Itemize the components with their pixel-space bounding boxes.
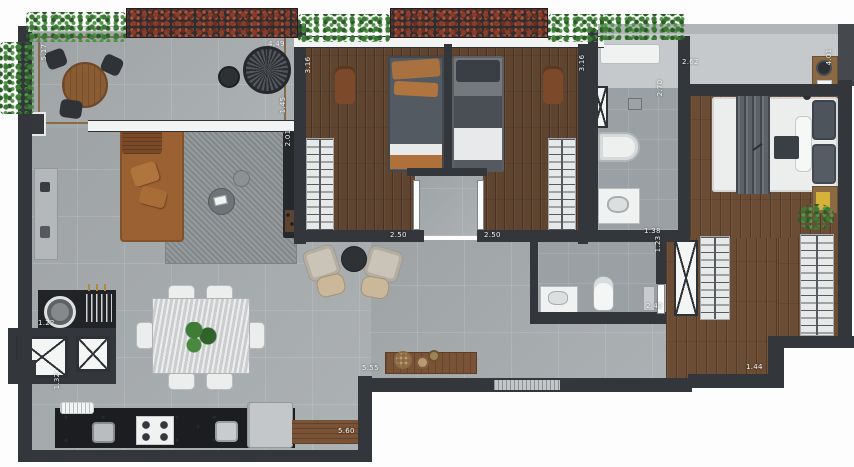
bed-tray bbox=[774, 136, 799, 159]
dim-service-width: 1.22 bbox=[38, 319, 55, 327]
kitchen-wood-counter bbox=[292, 420, 368, 444]
master-plant bbox=[798, 204, 834, 230]
bed1-sheet bbox=[390, 144, 442, 155]
planter-top-3 bbox=[548, 14, 604, 42]
shower-fixture bbox=[628, 98, 642, 110]
bathtub bbox=[598, 132, 640, 162]
dim-living-media: 2.01 bbox=[284, 126, 292, 150]
kitchen-sink bbox=[92, 422, 115, 443]
dim-living-span: 5.55 bbox=[362, 364, 379, 372]
bath2-wall-left bbox=[530, 230, 538, 324]
sideboard-plate bbox=[394, 351, 412, 369]
dim-living-opening: 1.45 bbox=[279, 93, 287, 117]
balcony-side-stool bbox=[218, 66, 240, 88]
table-plant bbox=[182, 322, 220, 354]
bedroom2-wardrobe bbox=[548, 138, 576, 234]
wall-bottom-kitchen bbox=[18, 450, 372, 462]
bedroom1-armchair bbox=[335, 66, 355, 104]
bottom-window bbox=[494, 380, 560, 390]
dim-bedroom1-width: 2.50 bbox=[390, 231, 407, 239]
cabinet-decor bbox=[40, 182, 50, 192]
elevator-2 bbox=[76, 336, 110, 372]
bath2-basin bbox=[548, 291, 568, 305]
dim-balcony-depth: 5.17 bbox=[40, 40, 48, 64]
wall-service-left bbox=[588, 30, 598, 240]
bedroom1-door bbox=[413, 180, 420, 230]
wall-bottom-right bbox=[778, 336, 854, 348]
bedroom-vestibule-floor bbox=[415, 176, 483, 236]
dim-master-depth: 4.01 bbox=[825, 45, 833, 69]
dim-bath1-depth: 2.70 bbox=[656, 76, 664, 100]
dim-bedroom2-width: 2.50 bbox=[484, 231, 501, 239]
master-pillow bbox=[812, 144, 836, 184]
wall-right bbox=[838, 80, 852, 346]
roof-corner bbox=[838, 24, 854, 86]
dim-bath2-width: 2.42 bbox=[646, 302, 663, 310]
closet-wardrobe-right bbox=[800, 234, 834, 336]
dish-rack bbox=[60, 402, 94, 414]
bath2-wall-bottom bbox=[530, 312, 666, 324]
kitchen-sink-2 bbox=[215, 421, 238, 442]
dim-bedroom1-depth: 3.16 bbox=[304, 53, 312, 77]
planter-top-2 bbox=[298, 14, 390, 42]
bed2-blanket bbox=[454, 96, 502, 128]
drying-rack bbox=[86, 294, 112, 322]
wall-service-right bbox=[678, 36, 690, 240]
master-pillow bbox=[812, 100, 836, 140]
toilet bbox=[593, 276, 614, 311]
dim-bedroom2-depth: 3.16 bbox=[578, 51, 586, 75]
planter-box-red-1 bbox=[126, 8, 298, 38]
sideboard-plate bbox=[428, 350, 440, 362]
dim-bath2-depth: 1.23 bbox=[654, 232, 662, 256]
bed1-pillow bbox=[394, 81, 439, 97]
balcony-chair bbox=[59, 99, 83, 120]
floor-plan: 5.17 4.49 3.16 3.16 1.45 2.01 2.50 2.50 … bbox=[0, 0, 854, 467]
dim-closet-width: 1.44 bbox=[746, 363, 763, 371]
side-table bbox=[233, 170, 250, 187]
refrigerator bbox=[247, 402, 293, 448]
hook-pin bbox=[88, 284, 90, 291]
bed1-pillow bbox=[391, 58, 440, 79]
dim-kitchen-span: 5.60 bbox=[338, 427, 355, 435]
closet-mirror-wardrobe bbox=[674, 240, 698, 316]
stove bbox=[136, 416, 174, 445]
bedroom2-door bbox=[477, 180, 484, 230]
bed2-sheet bbox=[454, 128, 502, 160]
dining-chair bbox=[206, 372, 233, 390]
bed2-pillow bbox=[456, 60, 500, 82]
planter-top-1 bbox=[26, 12, 126, 42]
master-bed-throw bbox=[736, 95, 770, 194]
bath1-basin bbox=[607, 196, 629, 213]
bed1-blanket bbox=[390, 155, 442, 169]
closet-wardrobe-left bbox=[700, 236, 730, 320]
planter-laundry bbox=[600, 14, 686, 40]
dim-entry-width: 1.32 bbox=[53, 369, 61, 393]
sideboard-plate bbox=[416, 356, 429, 369]
decorative-fan bbox=[243, 46, 291, 94]
dim-master-width: 2.62 bbox=[682, 58, 699, 66]
balcony-sliding-door bbox=[88, 120, 294, 132]
cabinet-decor bbox=[40, 226, 50, 238]
planter-left bbox=[0, 42, 34, 114]
planter-box-red-2 bbox=[390, 8, 548, 38]
lounge-table bbox=[341, 246, 367, 272]
master-wall-top bbox=[678, 84, 842, 96]
wall-bed1-bed2 bbox=[444, 44, 452, 174]
bedroom2-armchair bbox=[543, 66, 563, 104]
vestibule-wall bbox=[407, 168, 487, 176]
hook-pin bbox=[96, 284, 98, 291]
dining-chair bbox=[168, 372, 195, 390]
bedroom1-wardrobe bbox=[306, 138, 334, 234]
hook-pin bbox=[104, 284, 106, 291]
sofa-wood-armrest bbox=[122, 130, 162, 154]
laundry-machine bbox=[600, 44, 660, 64]
dim-balcony-width: 4.49 bbox=[268, 40, 285, 48]
